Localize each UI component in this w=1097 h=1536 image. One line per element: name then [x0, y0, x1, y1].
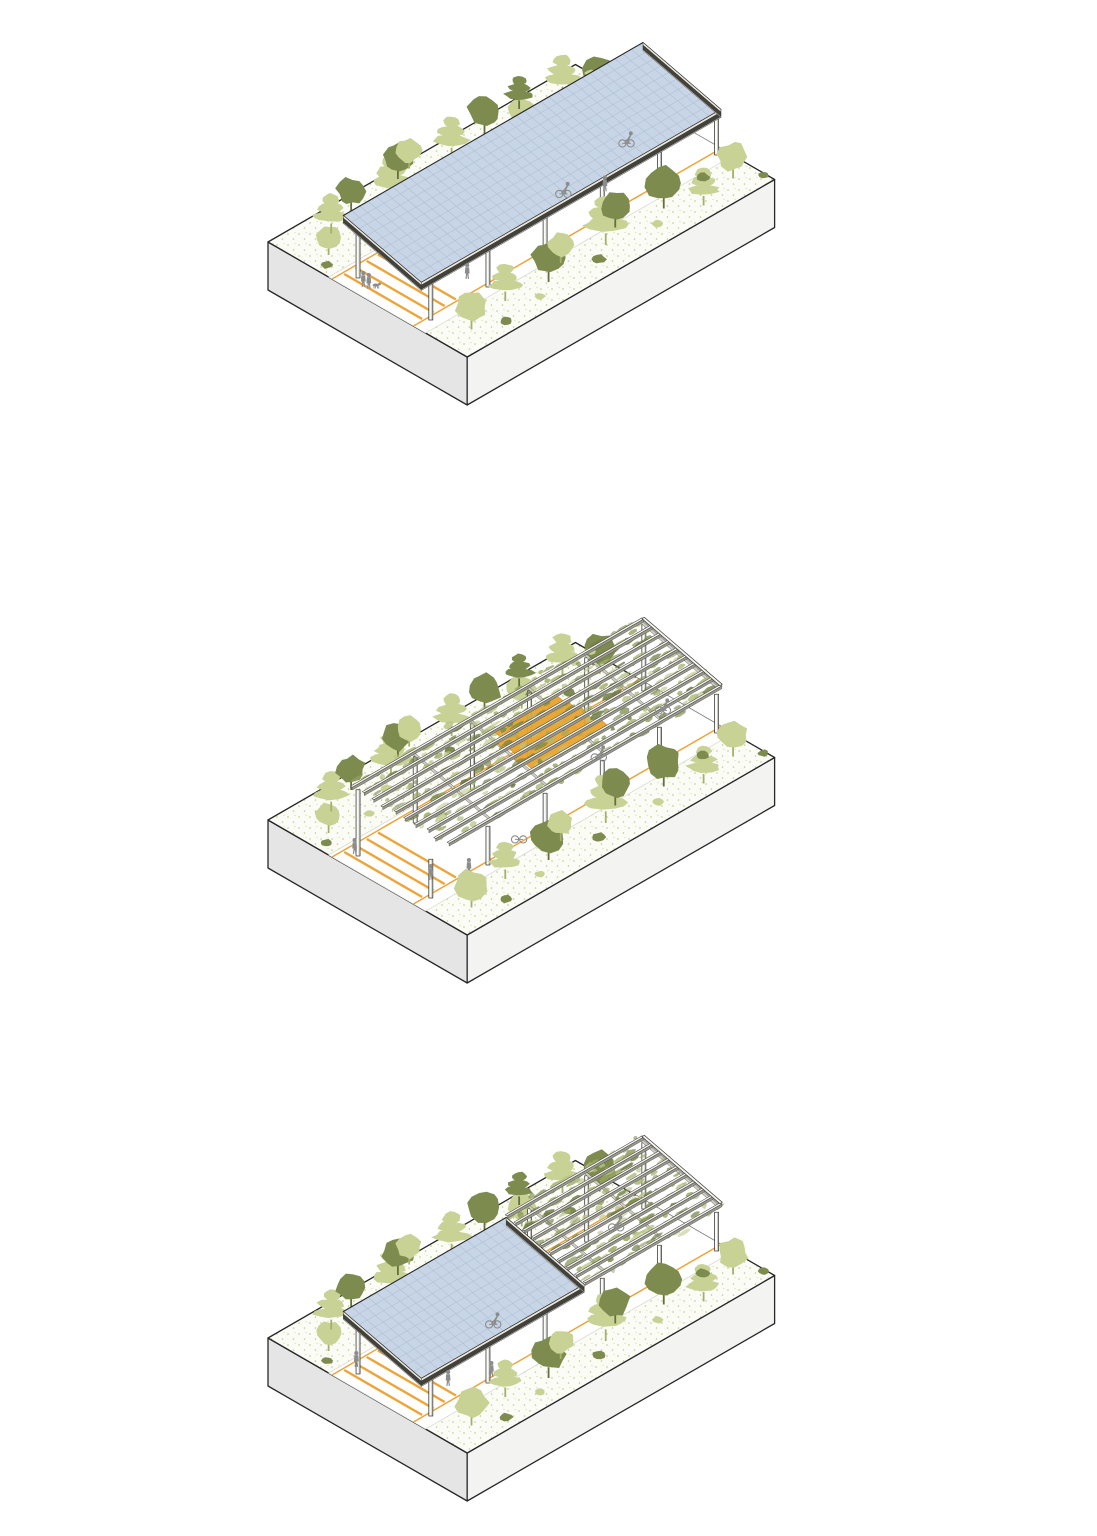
support-column	[429, 281, 433, 320]
support-column	[715, 116, 719, 155]
support-column	[715, 694, 719, 733]
support-column	[486, 248, 490, 287]
diagram-hybrid-canopy	[268, 1135, 775, 1501]
support-column	[429, 1377, 433, 1416]
support-column	[486, 1344, 490, 1383]
diagram-green-pergola	[268, 617, 775, 983]
isometric-diagram-canvas	[0, 0, 1097, 1536]
page	[0, 0, 1097, 1536]
support-column	[486, 826, 490, 865]
diagram-solar-canopy	[268, 43, 775, 406]
support-column	[715, 1212, 719, 1251]
